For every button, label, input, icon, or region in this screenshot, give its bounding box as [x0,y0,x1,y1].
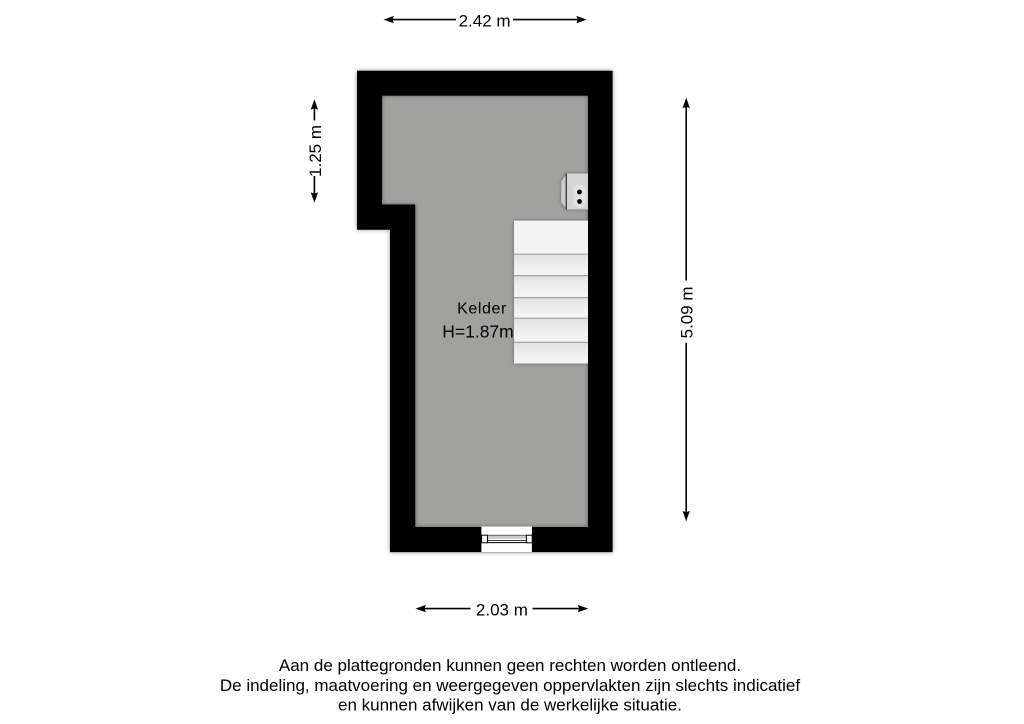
svg-text:2.03 m: 2.03 m [476,600,528,619]
svg-text:H=1.87m: H=1.87m [442,322,514,342]
svg-text:en kunnen afwijken van de werk: en kunnen afwijken van de werkelijke sit… [338,696,682,715]
svg-text:5.09 m: 5.09 m [678,286,697,338]
svg-text:Aan de plattegronden kunnen ge: Aan de plattegronden kunnen geen rechten… [279,656,741,675]
svg-text:De indeling, maatvoering en we: De indeling, maatvoering en weergegeven … [220,676,801,695]
svg-text:2.42 m: 2.42 m [459,11,511,30]
svg-text:1.25 m: 1.25 m [306,125,325,177]
svg-text:Kelder: Kelder [457,301,507,318]
